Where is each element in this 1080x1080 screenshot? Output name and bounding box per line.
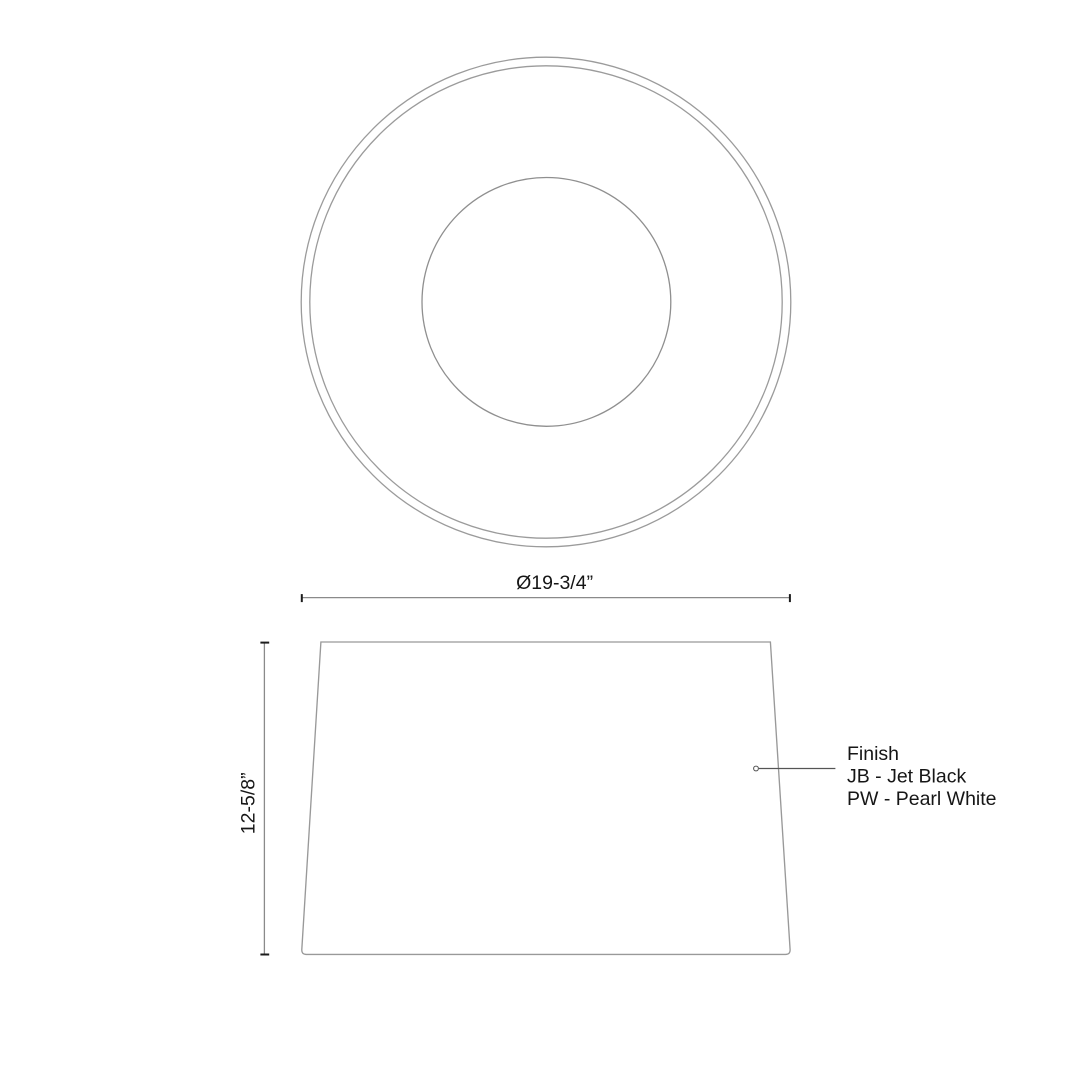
svg-text:JB - Jet Black: JB - Jet Black: [847, 766, 966, 788]
svg-text:Finish: Finish: [847, 743, 899, 765]
svg-text:Ø19-3/4”: Ø19-3/4”: [516, 572, 593, 594]
svg-text:12-5/8”: 12-5/8”: [238, 772, 260, 834]
svg-text:PW - Pearl White: PW - Pearl White: [847, 788, 997, 810]
